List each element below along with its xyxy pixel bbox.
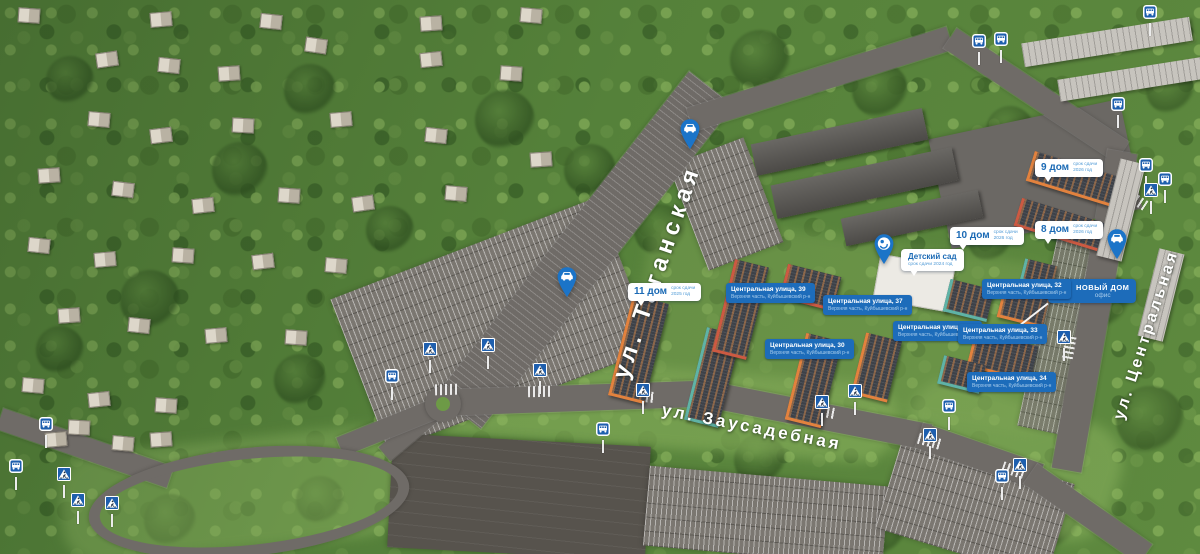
sign-pole	[111, 514, 113, 527]
sign-pole	[1164, 190, 1166, 203]
bus-stop-sign	[384, 369, 400, 400]
house-label-title: 11 дом	[634, 286, 667, 297]
roundabout-island	[436, 397, 450, 411]
building-village-house	[500, 65, 523, 81]
building-village-house	[27, 237, 50, 254]
car-pin[interactable]	[555, 266, 579, 298]
bus-icon	[994, 32, 1008, 46]
house-label-note: срок сдачи2026 год	[994, 230, 1018, 242]
bus-stop-sign	[8, 459, 24, 490]
car-pin[interactable]	[678, 118, 702, 150]
tree-clump	[475, 90, 535, 150]
bus-stop-sign	[971, 34, 987, 65]
bus-stop-sign	[941, 399, 957, 430]
crosswalk-sign	[635, 383, 651, 414]
house-label[interactable]: 10 домсрок сдачи2026 год	[950, 227, 1024, 245]
bus-stop-sign	[994, 469, 1010, 500]
pedestrian-icon	[423, 342, 437, 356]
address-label[interactable]: Центральная улица, 34Верхняя часть, Куйб…	[967, 372, 1056, 392]
building-village-house	[304, 37, 328, 55]
tree-clump	[366, 206, 414, 254]
sign-pole	[77, 511, 79, 524]
building-village-house	[351, 195, 375, 213]
office-label-title: НОВЫЙ ДОМ	[1076, 283, 1129, 292]
tree-clump	[274, 354, 326, 406]
tree-clump	[212, 142, 268, 198]
crosswalk-sign	[1143, 183, 1159, 214]
crosswalk-sign	[922, 428, 938, 459]
bus-icon	[972, 34, 986, 48]
sign-pole	[391, 387, 393, 400]
building-village-house	[420, 15, 443, 31]
building-village-house	[150, 431, 173, 447]
building-village-house	[93, 251, 116, 268]
zebra-crossing	[435, 384, 459, 396]
sign-pole	[1001, 487, 1003, 500]
address-label-street: Центральная улица, 39	[731, 286, 810, 293]
building-village-house	[530, 151, 553, 167]
building-village-house	[251, 253, 275, 271]
building-village-house	[87, 111, 110, 128]
sign-pole	[429, 360, 431, 373]
address-label-district: Верхняя часть, Куйбышевский р-н	[770, 350, 849, 356]
bus-icon	[1158, 172, 1172, 186]
address-label-street: Центральная улица, 37	[828, 298, 907, 305]
sign-pole	[978, 52, 980, 65]
bus-stop-sign	[38, 417, 54, 448]
building-village-house	[149, 127, 173, 145]
sign-pole	[642, 401, 644, 414]
sign-pole	[539, 381, 541, 394]
sign-pole	[487, 356, 489, 369]
crosswalk-sign	[532, 363, 548, 394]
parking-lot-south-mid	[643, 466, 889, 554]
crosswalk-sign	[1056, 330, 1072, 361]
house-label-note: срок сдачи2025 год	[671, 286, 695, 298]
address-label-street: Центральная улица, 30	[770, 342, 849, 349]
sign-pole	[1019, 476, 1021, 489]
building-village-house	[127, 317, 150, 334]
sign-pole	[854, 402, 856, 415]
building-village-house	[419, 51, 442, 68]
building-village-house	[218, 65, 241, 81]
building-village-house	[111, 181, 135, 199]
pedestrian-icon	[1013, 458, 1027, 472]
sign-pole	[15, 477, 17, 490]
crosswalk-sign	[847, 384, 863, 415]
house-label[interactable]: 11 домсрок сдачи2025 год	[628, 283, 701, 301]
pedestrian-icon	[533, 363, 547, 377]
house-label[interactable]: 8 домсрок сдачи2026 год	[1035, 221, 1103, 239]
building-village-house	[111, 435, 134, 452]
house-label[interactable]: 9 домсрок сдачи2026 год	[1035, 159, 1103, 177]
building-village-house	[21, 377, 44, 394]
building-village-house	[68, 419, 91, 435]
building-residential-existing	[1021, 17, 1193, 67]
pedestrian-icon	[815, 395, 829, 409]
pedestrian-icon	[481, 338, 495, 352]
building-village-house	[172, 247, 195, 263]
address-label[interactable]: Центральная улица, 30Верхняя часть, Куйб…	[765, 339, 854, 359]
building-village-house	[259, 13, 282, 30]
building-village-house	[157, 57, 180, 74]
sign-pole	[1117, 115, 1119, 128]
address-label-street: Центральная улица, 32	[987, 282, 1066, 289]
building-village-house	[149, 11, 172, 28]
building-village-house	[424, 127, 447, 144]
building-village-house	[232, 117, 255, 133]
address-label-district: Верхняя часть, Куйбышевский р-н	[828, 306, 907, 312]
building-village-house	[191, 197, 214, 214]
address-label[interactable]: Центральная улица, 39Верхняя часть, Куйб…	[726, 283, 815, 303]
bus-icon	[1111, 97, 1125, 111]
bus-icon	[385, 369, 399, 383]
bus-icon	[39, 417, 53, 431]
building-village-house	[324, 257, 347, 274]
sign-pole	[1000, 50, 1002, 63]
building-village-house	[58, 307, 81, 323]
building-village-house	[18, 7, 41, 23]
address-label[interactable]: Центральная улица, 32Верхняя часть, Куйб…	[982, 279, 1071, 299]
bus-icon	[596, 422, 610, 436]
bus-stop-sign	[595, 422, 611, 453]
map-stage: ул. Таганская ул. Заусадебная ул. Центра…	[0, 0, 1200, 554]
bus-stop-sign	[993, 32, 1009, 63]
house-label-title: 8 дом	[1041, 224, 1069, 235]
sign-pole	[45, 435, 47, 448]
crosswalk-sign	[104, 496, 120, 527]
bus-stop-sign	[1157, 172, 1173, 203]
building-village-house	[444, 185, 467, 202]
sign-pole	[821, 413, 823, 426]
tree-clump	[46, 56, 94, 104]
crosswalk-sign	[422, 342, 438, 373]
building-village-house	[329, 111, 352, 128]
crosswalk-sign	[814, 395, 830, 426]
vacant-lot-south	[387, 433, 651, 554]
tree-clump	[284, 64, 336, 116]
address-label-district: Верхняя часть, Куйбышевский р-н	[972, 383, 1051, 389]
building-village-house	[285, 329, 308, 345]
pedestrian-icon	[1144, 183, 1158, 197]
sign-pole	[948, 417, 950, 430]
house-label-title: Детский сад	[908, 252, 957, 261]
crosswalk-sign	[70, 493, 86, 524]
address-label-street: Центральная улица, 34	[972, 375, 1051, 382]
address-label-street: Центральная улица, 33	[963, 327, 1042, 334]
house-label-note: срок сдачи 2024 год	[908, 262, 952, 268]
bus-icon	[9, 459, 23, 473]
crosswalk-sign	[480, 338, 496, 369]
pedestrian-icon	[71, 493, 85, 507]
building-village-house	[204, 327, 227, 344]
sign-pole	[929, 446, 931, 459]
bus-stop-sign	[1110, 97, 1126, 128]
pedestrian-icon	[636, 383, 650, 397]
house-label-note: срок сдачи2026 год	[1073, 162, 1097, 174]
address-label-district: Верхняя часть, Куйбышевский р-н	[731, 294, 810, 300]
address-label-district: Верхняя часть, Куйбышевский р-н	[963, 335, 1042, 341]
crosswalk-sign	[1012, 458, 1028, 489]
sign-pole	[1063, 348, 1065, 361]
sign-pole	[602, 440, 604, 453]
bus-icon	[1143, 5, 1157, 19]
address-label[interactable]: Центральная улица, 33Верхняя часть, Куйб…	[958, 324, 1047, 344]
bus-icon	[995, 469, 1009, 483]
house-label-note: срок сдачи2026 год	[1073, 224, 1097, 236]
house-label-title: 10 дом	[956, 230, 990, 241]
building-village-house	[38, 167, 61, 183]
car-pin[interactable]	[1105, 228, 1129, 260]
sign-pole	[63, 485, 65, 498]
address-label[interactable]: Центральная улица, 37Верхняя часть, Куйб…	[823, 295, 912, 315]
bus-icon	[942, 399, 956, 413]
pedestrian-icon	[923, 428, 937, 442]
office-label-subtitle: офис	[1095, 292, 1111, 299]
building-village-house	[155, 397, 178, 413]
building-village-house	[278, 187, 301, 203]
building-village-house	[519, 7, 542, 24]
kindergarten-pin[interactable]	[872, 233, 896, 265]
building-village-house	[87, 391, 110, 408]
house-label[interactable]: Детский садсрок сдачи 2024 год	[901, 249, 964, 271]
tree-clump	[36, 326, 84, 374]
address-label-district: Верхняя часть, Куйбышевский р-н	[987, 290, 1066, 296]
bus-stop-sign	[1142, 5, 1158, 36]
pedestrian-icon	[1057, 330, 1071, 344]
building-village-house	[95, 51, 119, 69]
pedestrian-icon	[105, 496, 119, 510]
pedestrian-icon	[57, 467, 71, 481]
house-label-title: 9 дом	[1041, 162, 1069, 173]
pedestrian-icon	[848, 384, 862, 398]
sign-pole	[1150, 201, 1152, 214]
sign-pole	[1149, 23, 1151, 36]
bus-icon	[1139, 158, 1153, 172]
